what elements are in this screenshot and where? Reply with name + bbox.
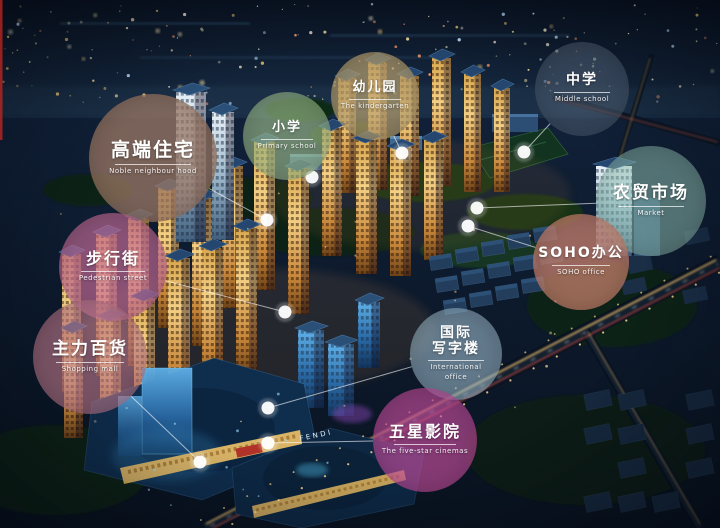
label-en-line: Middle school [555,95,609,104]
label-divider [349,99,402,100]
label-divider [552,265,610,266]
label-en-line: SOHO office [557,268,605,277]
label-bubble-primary-school: 小学Primary school [243,92,331,180]
label-divider [261,139,314,140]
label-en: The kindergarten [341,102,409,111]
label-cn: 中学 [566,73,598,89]
label-cn-line: 步行街 [86,250,140,268]
label-cn: 农贸市场 [613,184,689,203]
label-cn-line: 主力百货 [52,340,128,359]
label-en: Noble neighbour hood [109,167,197,176]
masterplan-page: FENDI 高端住宅Noble neighbour hood步行街Pedestr… [0,0,720,528]
label-cn-line: 写字楼 [432,342,480,358]
label-cn: 幼儿园 [352,81,397,96]
label-cn: SOHO办公 [538,246,624,262]
label-cn: 高端住宅 [111,140,195,161]
label-en: Internationaloffice [430,363,481,382]
label-en-line: The kindergarten [341,102,409,111]
label-bubble-middle-school: 中学Middle school [535,42,629,136]
label-en-line: The five-star cinemas [382,447,468,456]
label-bubble-kindergarten: 幼儿园The kindergarten [331,52,419,140]
label-cn-line: 小学 [272,121,302,136]
label-cn: 五星影院 [389,423,461,441]
label-cn-line: 高端住宅 [111,140,195,161]
label-bubble-soho-office: SOHO办公SOHO office [533,214,629,310]
label-bubble-international-office: 国际写字楼Internationaloffice [410,308,502,400]
label-cn-line: 幼儿园 [352,81,397,96]
label-en-line: Noble neighbour hood [109,167,197,176]
label-en-line: Shopping mall [62,365,119,374]
label-divider [618,206,684,207]
label-cn-line: 五星影院 [389,423,461,441]
label-en-line: Pedestrian street [79,274,147,283]
label-cn: 步行街 [86,250,140,268]
label-cn-line: 农贸市场 [613,184,689,203]
label-cn-line: 国际 [432,326,480,342]
label-divider [81,271,146,272]
label-bubble-shopping-mall: 主力百货Shopping mall [33,300,147,414]
label-cn: 国际写字楼 [432,326,480,357]
label-en: Shopping mall [62,365,119,374]
label-en: SOHO office [557,268,605,277]
label-en: Middle school [555,95,609,104]
label-en: Pedestrian street [79,274,147,283]
label-divider [56,362,124,363]
label-en-line: Market [637,209,664,218]
label-bubble-five-star-cinema: 五星影院The five-star cinemas [373,388,477,492]
label-cn-line: SOHO办公 [538,246,624,262]
label-cn: 主力百货 [52,340,128,359]
label-en: The five-star cinemas [382,447,468,456]
label-bubble-noble-neighbourhood: 高端住宅Noble neighbour hood [89,94,217,222]
label-divider [115,164,192,165]
facility-labels: 高端住宅Noble neighbour hood步行街Pedestrian st… [0,0,720,528]
label-divider [394,444,456,445]
label-divider [554,92,610,93]
label-en-line: International [430,363,481,372]
label-cn: 小学 [272,121,302,136]
label-en: Primary school [258,142,317,151]
label-cn-line: 中学 [566,73,598,89]
label-en: Market [637,209,664,218]
label-en-line: Primary school [258,142,317,151]
label-en-line: office [430,373,481,382]
label-divider [428,360,483,361]
